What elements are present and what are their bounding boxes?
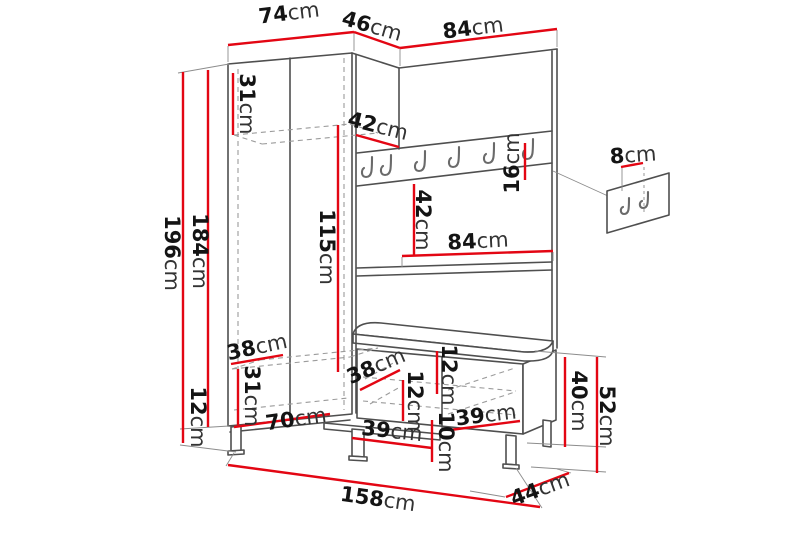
dimension-label-wardrobe-interior-height: 115cm xyxy=(315,209,339,285)
dimension-label-shelf-width: 84cm xyxy=(447,227,509,254)
dimension-label-bench-upper-gap: 12cm xyxy=(437,344,461,405)
dimension-line-74 xyxy=(228,32,354,45)
leg xyxy=(543,420,551,447)
dimension-label-bench-left-compartment-width: 39cm xyxy=(360,416,423,446)
dimension-label-wardrobe-top-width: 74cm xyxy=(257,0,321,29)
dimension-label-wardrobe-upper-shelf-height: 31cm xyxy=(235,73,259,134)
dimension-label-total-width: 158cm xyxy=(339,482,417,516)
dimension-label-hook-rail-offset: 42cm xyxy=(345,107,410,145)
leg xyxy=(231,426,241,452)
dimension-label-wardrobe-body-height: 184cm xyxy=(188,213,212,289)
dimension-label-bench-total-height: 52cm xyxy=(595,385,619,446)
dimension-label-bench-body-height: 40cm xyxy=(567,370,591,431)
diagram-canvas: 74cm46cm84cm31cm196cm184cm115cm42cm16cm4… xyxy=(0,0,800,533)
coat-hook-icon xyxy=(415,151,425,171)
furniture-dimension-diagram: 74cm46cm84cm31cm196cm184cm115cm42cm16cm4… xyxy=(0,0,800,533)
wall-hook-panel-detail xyxy=(553,167,669,233)
dimension-label-total-height: 196cm xyxy=(160,215,184,291)
dimension-label-hook-rail-height: 16cm xyxy=(500,132,524,193)
dimension-label-leg-height: 12cm xyxy=(186,386,210,447)
dimension-label-panel-top-width: 84cm xyxy=(441,12,505,43)
dimension-label-wall-hook-panel-width: 8cm xyxy=(609,141,657,168)
coat-hook-icon xyxy=(362,157,372,177)
leg xyxy=(506,435,516,465)
dimension-label-wardrobe-top-depth: 46cm xyxy=(339,6,404,46)
leg-foot xyxy=(228,450,244,455)
dimension-label-bench-lower-gap: 10cm xyxy=(434,411,458,472)
coat-hook-icon xyxy=(449,147,459,167)
shelf xyxy=(357,262,552,276)
coat-hook-icon xyxy=(484,143,494,163)
coat-hook-icon xyxy=(381,155,391,175)
leg-foot xyxy=(349,456,367,461)
dimension-label-rail-to-shelf-distance: 42cm xyxy=(411,189,435,250)
dimension-label-wardrobe-lower-compartment-height: 31cm xyxy=(240,365,264,426)
